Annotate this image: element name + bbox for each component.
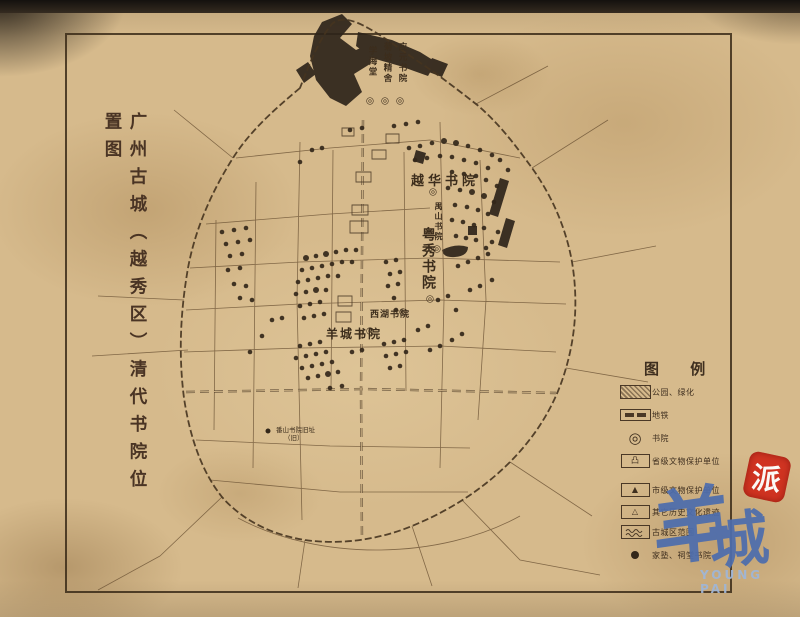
legend-item-other-relic: △ 其它历史文化遗迹 [618,504,720,520]
hill-and-relic-blobs [296,14,515,257]
academy-dot [394,308,399,313]
legend-item-label: 书院 [652,433,669,444]
academy-dot [438,344,443,349]
academy-dot [336,370,341,375]
academy-dot [298,304,303,309]
academy-dot [386,284,391,289]
academy-dot [384,260,389,265]
academy-dot [454,234,459,239]
legend-item-academy: ◎ 书院 [618,430,669,446]
academy-dot [294,292,299,297]
academy-dot [224,242,229,247]
academy-dot [314,352,319,357]
academy-dot [232,228,237,233]
academy-dot [240,252,245,257]
academy-dot [490,240,495,245]
dot-icon [618,551,652,559]
academy-dot [298,160,303,165]
academy-dot [428,348,433,353]
academy-dot [320,264,325,269]
legend-item-label: 省级文物保护单位 [652,456,720,467]
other-relic-icon: △ [618,505,652,519]
academy-dot [458,188,463,193]
academy-dot [300,366,305,371]
academy-dot [354,248,359,253]
academy-dot [324,350,329,355]
legend-item-label: 公园、绿化 [652,387,695,398]
academy-dot [304,354,309,359]
academy-dot [310,148,315,153]
academy-dot [220,230,225,235]
academy-dot [495,184,500,189]
academy-dot [481,193,487,199]
academy-dot [472,223,477,228]
academy-dot [394,258,399,263]
legend-item-label: 其它历史文化遗迹 [652,507,720,518]
road-network [92,66,656,590]
municipal-relic-icon: ▲ [618,483,652,497]
legend-item-label: 家塾、祠堂书院 [652,550,712,561]
academy-dot [303,255,309,261]
academy-dot [388,272,393,277]
academy-dot [318,340,323,345]
academy-dot [474,161,479,166]
academy-dot [388,366,393,371]
city-wall-boundary [181,20,576,542]
academy-dot [260,334,265,339]
academy-dot [460,332,465,337]
academy-dot [478,148,483,153]
academy-dot [456,264,461,269]
academy-dot [486,252,491,257]
academy-dot [320,362,325,367]
academy-dot [228,254,233,259]
legend-item-municipal-relic: ▲ 市级文物保护单位 [618,482,720,498]
academy-dot [426,324,431,329]
academy-dot [492,200,497,205]
academy-dot [392,124,397,129]
academy-dot [294,356,299,361]
academy-dot [312,314,317,319]
academy-dot [316,276,321,281]
academy-dot [280,316,285,321]
academy-dot [404,350,409,355]
academy-dot [236,240,241,245]
academy-dot [330,262,335,267]
academy-dot [340,260,345,265]
academy-dot [325,371,331,377]
legend-title: 图 例 [644,358,718,379]
academy-dot [466,144,471,149]
academy-dot [314,254,319,259]
academy-dot [450,218,455,223]
academy-dot [328,386,333,391]
academy-dot [313,287,319,293]
academy-dot [398,364,403,369]
academy-dot [416,120,421,125]
academy-dot [464,236,469,241]
academy-dot [226,268,231,273]
academy-dot [407,146,412,151]
academy-dot [436,298,441,303]
academy-dots-layer [220,120,511,391]
academy-dot [344,248,349,253]
old-city-wall-icon [618,525,652,539]
academy-dot [416,328,421,333]
academy-dot [323,251,329,257]
academy-dot [430,141,435,146]
academy-dot [308,342,313,347]
academy-dot [450,155,455,160]
academy-dot [450,338,455,343]
academy-dot [322,312,327,317]
academy-dot [446,294,451,299]
academy-dot [462,158,467,163]
legend-item-label: 地铁 [652,410,669,421]
academy-dot [462,172,467,177]
academy-dot [453,203,458,208]
academy-dot [392,340,397,345]
academy-dot [474,238,479,243]
academy-dot [498,158,503,163]
academy-dot [336,274,341,279]
academy-dot [318,300,323,305]
academy-dot [461,220,466,225]
academy-dot [466,260,471,265]
academy-dot [350,350,355,355]
academy-dot [425,156,430,161]
provincial-relic-icon: 凸 [618,454,652,468]
academy-dot [453,140,459,146]
academy-dot [310,266,315,271]
academy-dot [300,268,305,273]
academy-dot [465,205,470,210]
academy-dot [250,298,255,303]
academy-dot [413,158,418,163]
academy-dot [244,226,249,231]
academy-dot [441,138,447,144]
academy-dot [486,166,491,171]
academy-dot [402,338,407,343]
academy-dot [308,302,313,307]
academy-dot [474,174,479,179]
legend-item-label: 市级文物保护单位 [652,485,720,496]
academy-dot [482,226,487,231]
greenery-icon [618,385,652,399]
academy-dot [384,354,389,359]
academy-dot [496,230,501,235]
legend-item-clan-academy: 家塾、祠堂书院 [618,547,712,563]
legend-item-old-city: 古城区范围 [618,524,695,540]
legend-item-metro: 地铁 [618,407,669,423]
academy-dot [310,364,315,369]
academy-dot [478,284,483,289]
academy-dot [340,384,345,389]
academy-dot [302,316,307,321]
academy-dot [490,278,495,283]
academy-dot [248,238,253,243]
academy-dot [330,360,335,365]
academy-dot [484,246,489,251]
city-block-outlines [336,128,399,322]
academy-dot [298,344,303,349]
academy-dot [418,144,423,149]
academy-dot [306,278,311,283]
academy-dot [296,280,301,285]
academy-dot [392,296,397,301]
academy-dot [454,308,459,313]
academy-dot [270,318,275,323]
academy-ring-icon: ◎ [618,431,652,446]
academy-dot [360,126,365,131]
academy-dot [324,288,329,293]
academy-dot [382,342,387,347]
academy-dot [326,274,331,279]
academy-dot [450,170,455,175]
academy-dot [244,284,249,289]
academy-dot [396,282,401,287]
academy-dot [394,352,399,357]
academy-dot [446,186,451,191]
legend-item-label: 古城区范围 [652,527,695,538]
legend-item-provincial-relic: 凸 省级文物保护单位 [618,453,720,469]
academy-dot [248,350,253,355]
metro-icon [618,409,652,421]
academy-dot [484,178,489,183]
academy-dot [506,168,511,173]
academy-dot [238,296,243,301]
academy-dot [360,348,365,353]
academy-dot [348,128,353,133]
academy-dot [334,250,339,255]
academy-dot [304,290,309,295]
academy-dot [468,288,473,293]
academy-dot [469,189,475,195]
academy-dot [238,266,243,271]
academy-dot [232,282,237,287]
academy-dot [306,376,311,381]
academy-dot [486,212,491,217]
academy-dot [350,260,355,265]
academy-dot [404,122,409,127]
legend-item-greenery: 公园、绿化 [618,384,695,400]
academy-dot [438,154,443,159]
academy-dot [476,256,481,261]
academy-dot [316,374,321,379]
academy-dot [398,270,403,275]
academy-dot [490,153,495,158]
academy-dot [320,146,325,151]
academy-dot [476,208,481,213]
plaque-photo: 广州古城（越秀区）清代书院位置图 学海堂◎菊坡精舍◎应元书院◎越华书院◎禺山书院… [0,0,800,617]
